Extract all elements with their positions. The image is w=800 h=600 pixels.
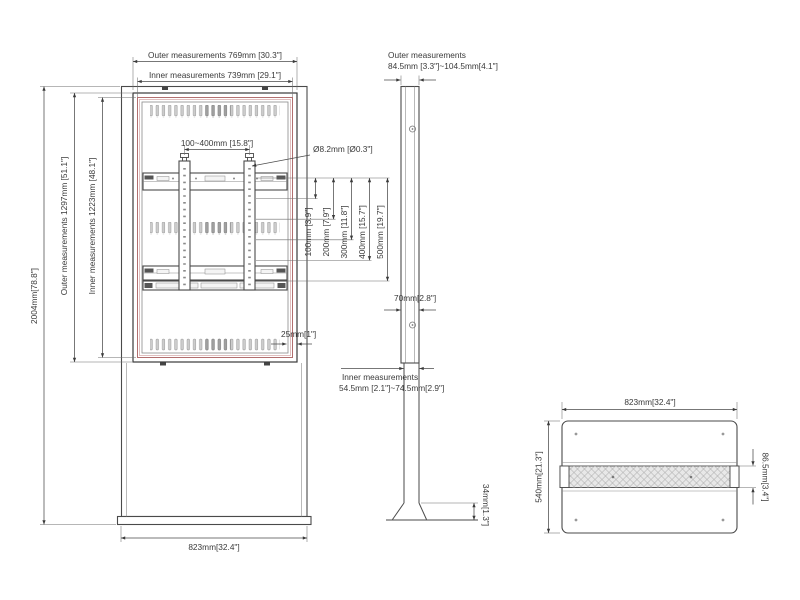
plate-screw xyxy=(575,519,578,522)
dim-hole-diameter: Ø8.2mm [Ø0.3"] xyxy=(313,144,373,154)
dim-foot-height: 34mm[1.3"] xyxy=(481,484,491,526)
drawing-canvas: Outer measurements 769mm [30.3"] Inner m… xyxy=(0,0,800,600)
dim-vesa-height-300: 300mm [11.8"] xyxy=(339,205,349,258)
dim-outer-width: Outer measurements 769mm [30.3"] xyxy=(148,50,282,60)
dim-column-depth: 86.5mm[3.4"] xyxy=(761,452,771,501)
dim-vesa-height-400: 400mm [15.7"] xyxy=(357,205,367,259)
dim-vesa-width: 100~400mm [15.8"] xyxy=(181,138,253,148)
crossbar-lower xyxy=(143,266,287,280)
dim-inner-width: Inner measurements 739mm [29.1"] xyxy=(149,70,281,80)
top-bracket-tick xyxy=(262,87,268,90)
side-view: Outer measurements 84.5mm [3.3"]~104.5mm… xyxy=(339,50,498,526)
dim-top-width: 823mm[32.4"] xyxy=(624,397,675,407)
column-end-cap xyxy=(560,466,569,488)
dim-frame-width: 25mm[1"] xyxy=(281,329,316,339)
side-foot xyxy=(386,503,478,520)
bottom-bracket-tick xyxy=(264,363,270,366)
dim-side-depth: 70mm[2.8"] xyxy=(394,293,436,303)
column-cross-section xyxy=(560,466,739,488)
bottom-bracket-tick xyxy=(160,363,166,366)
technical-drawing: Outer measurements 769mm [30.3"] Inner m… xyxy=(0,0,800,600)
dim-outer-height: Outer measurements 1297mm [51.1"] xyxy=(59,157,69,296)
vesa-rail-right xyxy=(244,154,255,291)
crossbar-slotted-bottom xyxy=(143,281,287,290)
top-view: 823mm[32.4"] 540mm[21.3"] 86.5mm[3.4"] xyxy=(534,397,771,533)
plate-screw xyxy=(722,519,725,522)
dim-vesa-height-200: 200mm [7.9"] xyxy=(321,207,331,256)
dim-base-width: 823mm[32.4"] xyxy=(188,542,239,552)
vesa-rail-left xyxy=(179,154,190,291)
top-bracket-tick xyxy=(162,87,168,90)
floor-base-plate xyxy=(118,517,312,525)
plate-screw xyxy=(575,433,578,436)
side-inner-measurements-line1: Inner measurements xyxy=(342,372,418,382)
dim-vesa-height-500: 500mm [19.7"] xyxy=(375,205,385,259)
column-end-cap xyxy=(730,466,739,488)
crossbar-upper xyxy=(143,173,287,190)
plate-screw xyxy=(722,433,725,436)
side-inner-measurements-line2: 54.5mm [2.1"]~74.5mm[2.9"] xyxy=(339,383,444,393)
side-outer-measurements-line1: Outer measurements xyxy=(388,50,466,60)
dim-top-depth: 540mm[21.3"] xyxy=(534,451,544,502)
dim-total-height: 2004mm[78.8"] xyxy=(29,268,39,324)
front-view: Outer measurements 769mm [30.3"] Inner m… xyxy=(29,50,390,552)
side-outer-measurements-line2: 84.5mm [3.3"]~104.5mm[4.1"] xyxy=(388,61,498,71)
dim-vesa-height-100: 100mm [3.9"] xyxy=(303,207,313,256)
dim-inner-height: Inner measurements 1223mm [48.1"] xyxy=(87,158,97,295)
